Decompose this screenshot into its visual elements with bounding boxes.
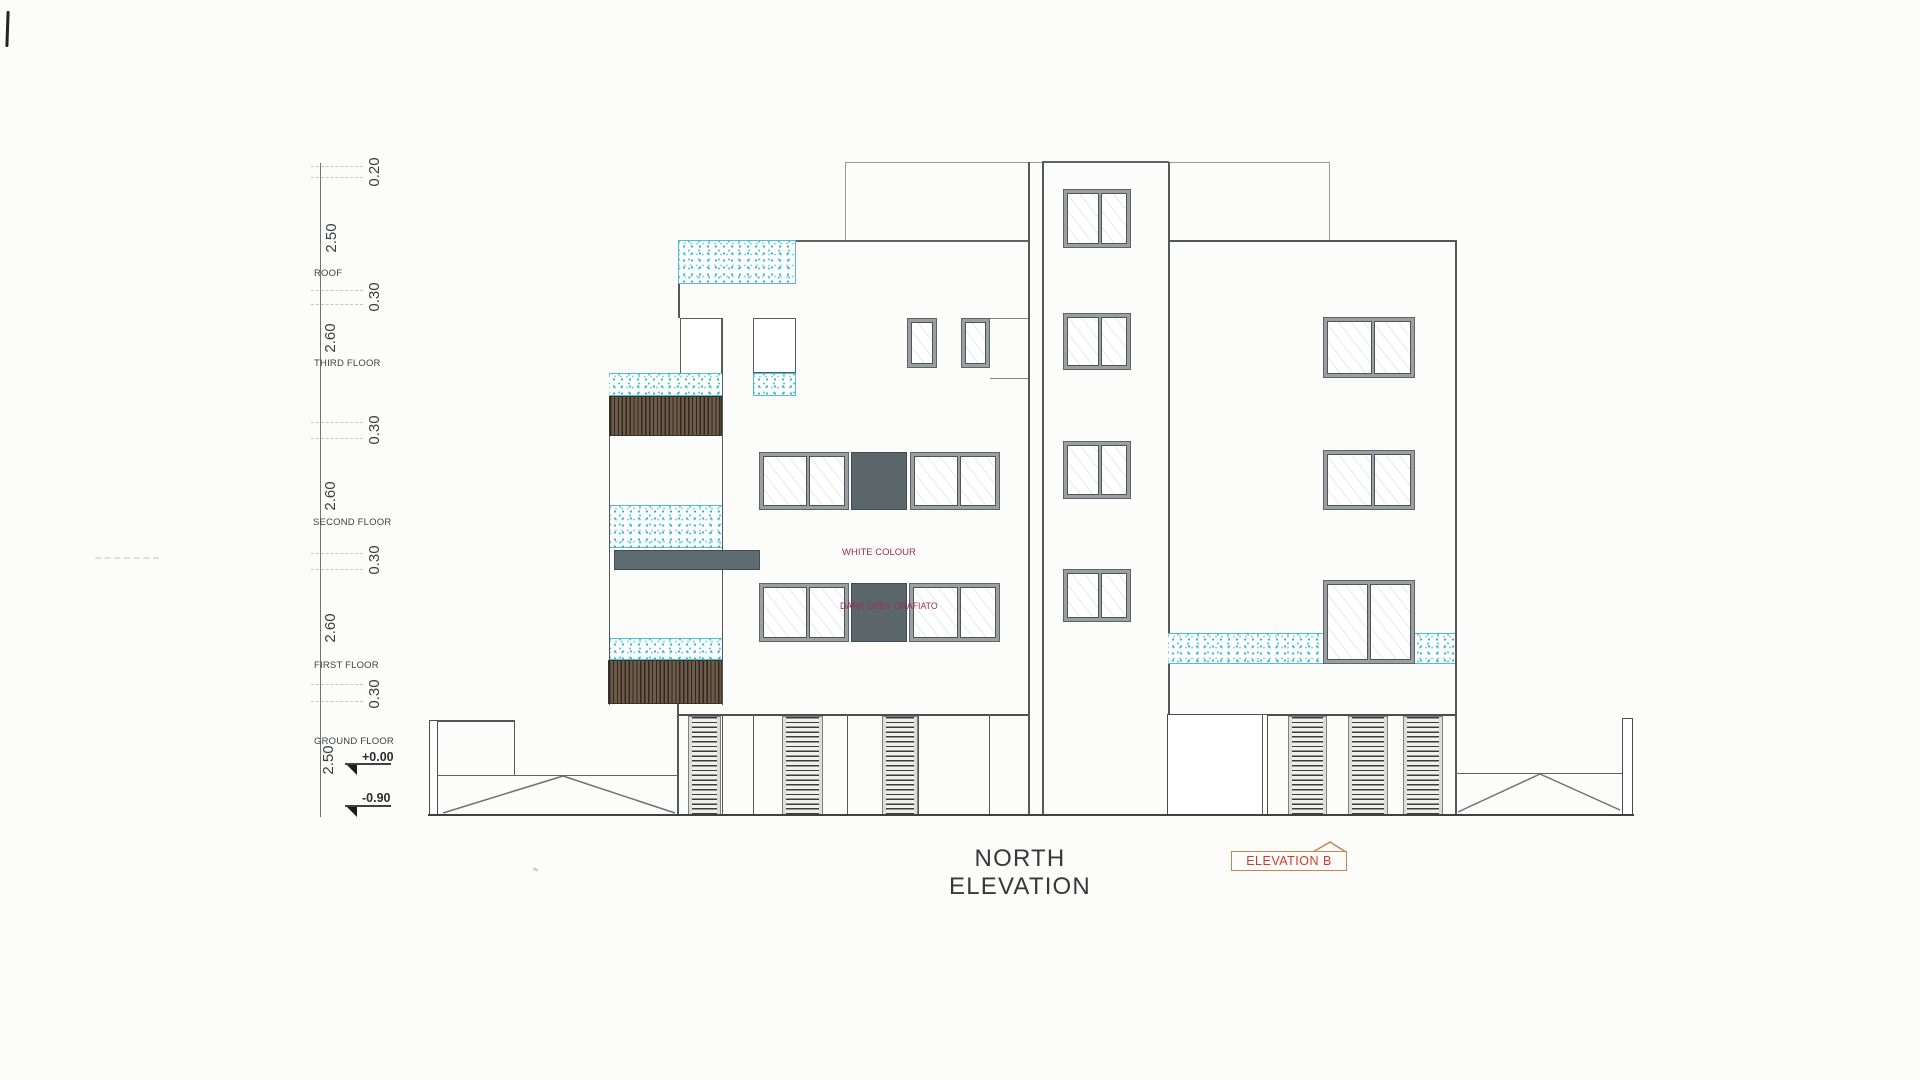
recess-top-line xyxy=(990,318,1028,319)
finish-note-white: WHITE COLOUR xyxy=(842,547,916,558)
dim-value: 0.30 xyxy=(366,275,382,319)
dim-value: 0.20 xyxy=(366,150,382,194)
window-sash xyxy=(1327,321,1372,374)
ground-wall-edge xyxy=(677,704,679,815)
dim-value: 2.50 xyxy=(323,216,339,260)
right-block-edge xyxy=(1455,240,1457,815)
window-small xyxy=(961,318,990,368)
level-dash xyxy=(311,177,363,178)
window-sash xyxy=(1327,454,1372,506)
window-sash xyxy=(763,587,807,638)
dim-value: 0.30 xyxy=(366,538,382,582)
window-wide xyxy=(1323,450,1415,510)
left-block-edge xyxy=(678,284,680,318)
window-sash xyxy=(1374,321,1411,374)
window-sash xyxy=(1101,573,1127,618)
roof-parapet-line-left xyxy=(796,240,1029,242)
balcony-timber-first xyxy=(608,660,722,704)
window-sash xyxy=(960,456,996,506)
ground-joint-line xyxy=(847,714,848,815)
grille-louvres xyxy=(786,717,819,814)
floor-label-roof: ROOF xyxy=(314,268,342,279)
level-dash xyxy=(311,166,363,167)
dim-value: 0.30 xyxy=(366,672,382,716)
window-sash xyxy=(1101,317,1127,366)
balcony-balustrade-first xyxy=(610,638,722,660)
balcony-window-balustrade xyxy=(753,373,796,396)
garage-door-blank xyxy=(1167,714,1268,815)
roof-parapet-grafiato xyxy=(678,240,796,284)
balcony-window xyxy=(753,318,796,373)
ground-joint-line xyxy=(753,714,754,815)
vent-grille xyxy=(882,716,918,815)
window-sash xyxy=(1374,454,1411,506)
window-sash xyxy=(763,456,807,506)
dim-value: 2.60 xyxy=(322,316,338,360)
level-dash xyxy=(311,701,363,702)
window-sash xyxy=(1101,445,1127,495)
balcony-balustrade-third xyxy=(609,373,722,396)
window-wide xyxy=(909,583,1000,642)
window-sash xyxy=(1101,193,1127,244)
dim-value: 2.60 xyxy=(322,606,338,650)
ground-joint-line xyxy=(989,714,990,815)
grafiato-panel xyxy=(851,583,907,642)
window-sash xyxy=(809,587,845,638)
vent-grille xyxy=(782,716,823,815)
level-dash xyxy=(311,304,363,305)
dimension-line xyxy=(320,163,321,817)
elevation-drawing-sheet: 0.20 2.50 0.30 2.60 0.30 2.60 0.30 2.60 … xyxy=(0,0,1920,1080)
window-sash xyxy=(960,587,996,638)
garage-post xyxy=(514,720,515,775)
window-sash xyxy=(965,322,986,364)
balcony-slab-second xyxy=(614,550,760,570)
spot-level-value: +0.00 xyxy=(362,750,394,764)
vent-grille xyxy=(1348,716,1388,815)
scan-edge-mark xyxy=(5,11,9,47)
grille-louvres xyxy=(1292,717,1323,814)
vent-grille xyxy=(1403,716,1443,815)
balcony-balustrade-second xyxy=(610,505,722,548)
scan-smudge xyxy=(95,557,159,559)
window-sash xyxy=(1067,193,1099,244)
roof-line-right-block xyxy=(1168,240,1457,242)
spot-level-arrow xyxy=(347,765,357,775)
tower-top-line xyxy=(1042,161,1169,163)
garage-roof-line xyxy=(438,720,514,722)
window-wide xyxy=(759,452,849,510)
grille-louvres xyxy=(886,717,914,814)
floor-label-second: SECOND FLOOR xyxy=(313,517,391,528)
window-wide xyxy=(910,452,1000,510)
level-dash xyxy=(311,553,363,554)
grille-louvres xyxy=(1352,717,1384,814)
garage-wall-left xyxy=(429,720,438,815)
ground-line xyxy=(428,814,1634,816)
penthouse-left-edge xyxy=(845,162,846,240)
window-sash xyxy=(1067,317,1099,366)
garage-wall-right xyxy=(1622,718,1633,815)
window-sash xyxy=(809,456,845,506)
recess-bottom-line xyxy=(990,378,1028,379)
window-small xyxy=(907,318,937,368)
door-panel xyxy=(1370,584,1411,660)
garage-door-edge xyxy=(1262,714,1263,815)
scan-dot xyxy=(533,867,539,872)
vent-grille xyxy=(1288,716,1327,815)
window-sash xyxy=(913,587,958,638)
balcony-timber-third xyxy=(609,396,722,436)
window-sash xyxy=(911,322,933,364)
ground-floor-top-left xyxy=(677,714,1028,716)
balcony-right-edge xyxy=(722,318,723,705)
door-panel xyxy=(1327,584,1368,660)
window-wide xyxy=(759,583,849,642)
floor-label-third: THIRD FLOOR xyxy=(314,358,381,369)
ground-joint-line xyxy=(918,714,919,815)
tower-left-inner-edge xyxy=(1042,162,1044,815)
level-dash xyxy=(311,290,363,291)
level-dash xyxy=(311,569,363,570)
dim-value: 0.30 xyxy=(366,408,382,452)
drawing-title: NORTH ELEVATION xyxy=(905,845,1135,901)
dim-value: 2.60 xyxy=(322,474,338,518)
garage-mid-line xyxy=(438,775,677,776)
balcony-door xyxy=(1323,580,1415,664)
garage-mid-line xyxy=(1455,773,1622,774)
tower-window-first xyxy=(1063,569,1131,622)
tower-window-roof xyxy=(1063,189,1131,248)
grille-louvres xyxy=(692,717,717,814)
spot-level-value: -0.90 xyxy=(362,791,391,805)
vent-grille xyxy=(688,716,721,815)
spot-level-arrow xyxy=(347,807,357,817)
balcony-opening xyxy=(680,318,722,373)
window-sash xyxy=(914,456,958,506)
window-sash xyxy=(1067,573,1099,618)
grafiato-panel xyxy=(851,452,907,510)
level-dash xyxy=(311,684,363,685)
penthouse-right-edge xyxy=(1329,162,1330,240)
finish-note-grafiato: DARK GREY GRAFIATO xyxy=(840,601,938,612)
window-wide xyxy=(1323,317,1415,378)
elevation-tag-label: ELEVATION B xyxy=(1246,854,1332,868)
level-dash xyxy=(311,422,363,423)
level-dash xyxy=(311,438,363,439)
window-sash xyxy=(1067,445,1099,495)
tower-window-second xyxy=(1063,441,1131,499)
floor-label-ground: GROUND FLOOR xyxy=(314,736,394,747)
tower-left-outer-edge xyxy=(1028,162,1030,815)
elevation-tag: ELEVATION B xyxy=(1231,851,1347,871)
ground-joint-line xyxy=(722,714,723,815)
grille-louvres xyxy=(1407,717,1439,814)
tower-window-third xyxy=(1063,313,1131,370)
floor-label-first: FIRST FLOOR xyxy=(314,660,379,671)
